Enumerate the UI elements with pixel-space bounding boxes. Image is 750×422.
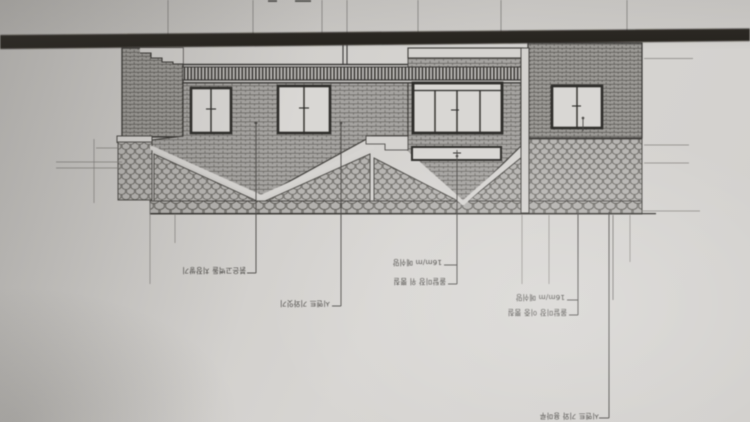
label-right-spec-line2: 몰탈미장 이중 뿜칠 [508,308,567,317]
label-brick-note: 붉은고벽돌 치장쌓기 [182,266,246,275]
window-2 [278,86,330,133]
center-brick-strip [408,58,521,67]
slot-vent-window [412,147,501,160]
top-beam [408,48,523,58]
window-3 [552,86,602,128]
label-bottom-note: 시멘트 기와 용마루 [539,412,599,421]
eave-band [117,136,152,143]
label-left-spec-line1: 16m/m 메쉬망 [392,258,442,267]
label-right-spec-line1: 16m/m 메쉬망 [515,293,565,302]
annotations: 붉은고벽돌 치장쌓기 시멘트 기와잇기 16m/m 메쉬망 몰탈미장 위 뿜칠 … [182,258,599,421]
left-brick-block [122,48,183,137]
downspout-pipe [521,48,529,213]
window-1 [191,88,231,133]
label-left-spec-line2: 몰탈미장 위 뿜칠 [393,277,446,286]
label-tile-note: 시멘트 기와잇기 [280,299,330,308]
window-4pane [413,83,502,133]
elevation-drawing-canvas: 붉은고벽돌 치장쌓기 시멘트 기와잇기 16m/m 메쉬망 몰탈미장 위 뿜칠 … [0,0,750,422]
photographed-elevation-drawing: 붉은고벽돌 치장쌓기 시멘트 기와잇기 16m/m 메쉬망 몰탈미장 위 뿜칠 … [0,0,750,422]
